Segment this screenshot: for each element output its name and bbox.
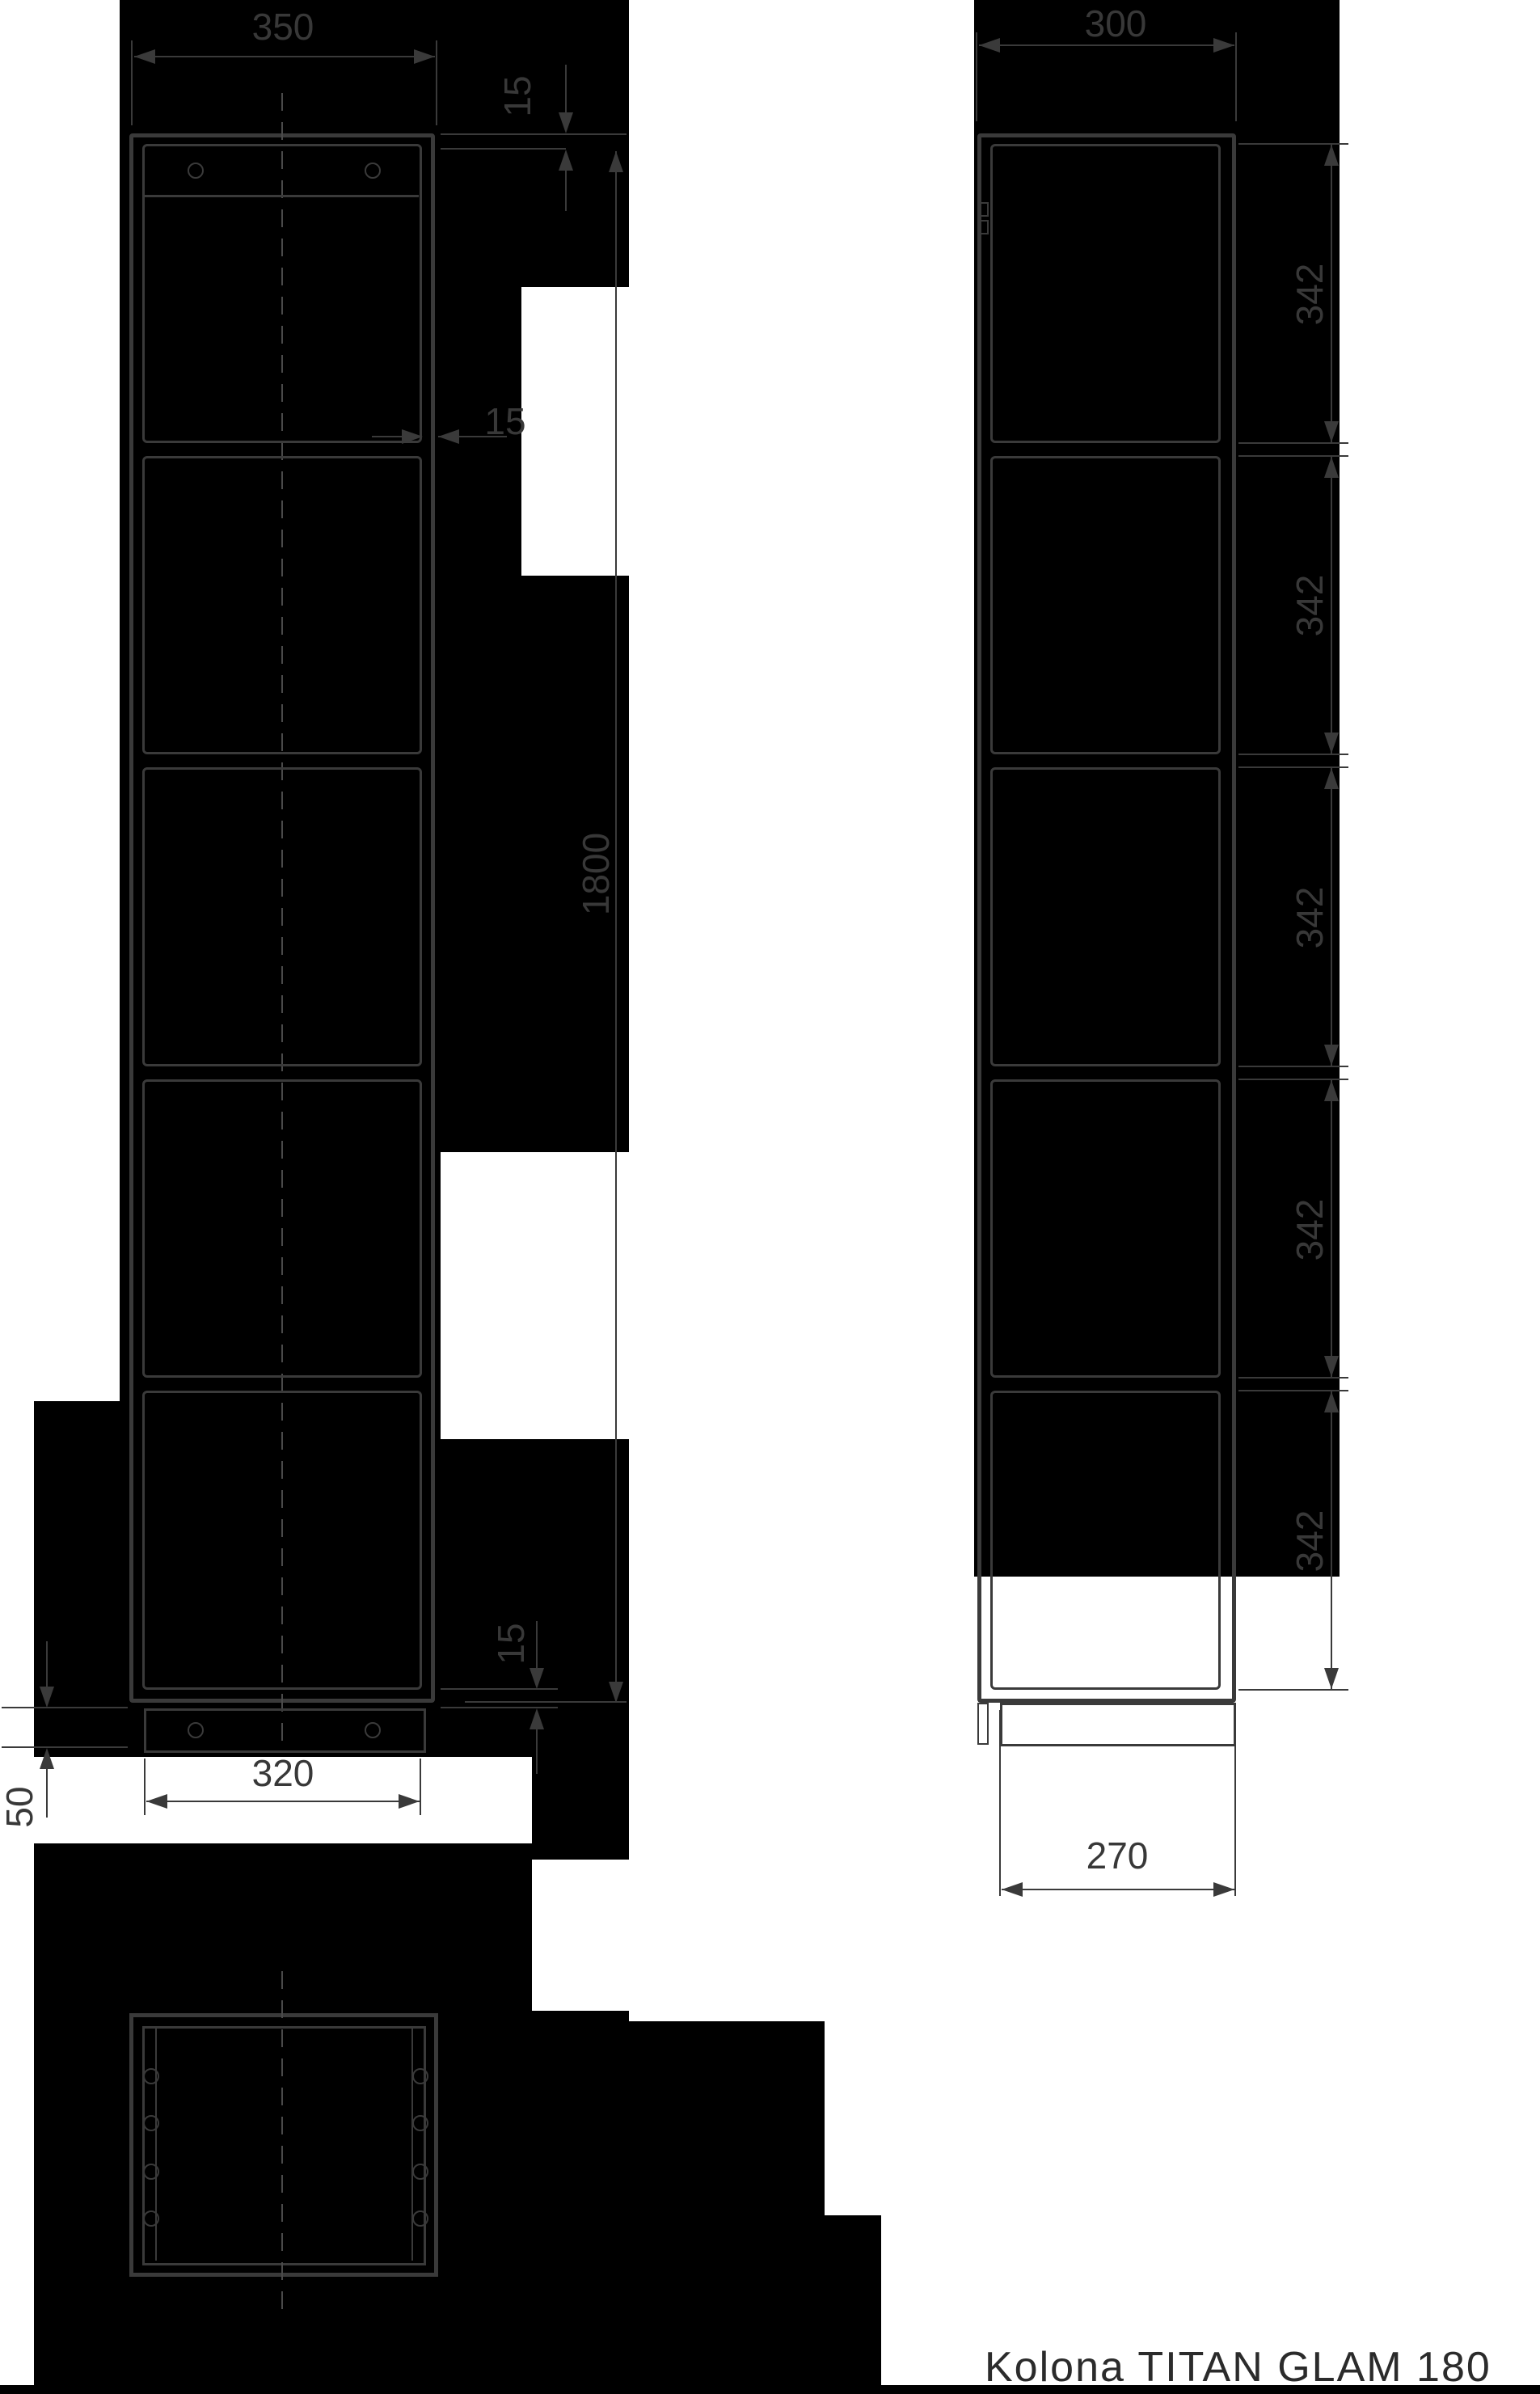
paper-notch-plan — [532, 1860, 629, 2011]
dim-bottom-gap-label: 15 — [492, 1607, 530, 1680]
side-panel-5 — [990, 1391, 1221, 1690]
dim-height-label: 1800 — [577, 813, 614, 935]
dim-front-width-label: 350 — [247, 8, 319, 45]
mount-hole-top-right — [365, 163, 381, 179]
paper-right-margin — [1340, 0, 1540, 1577]
plan-wall-left — [155, 2028, 157, 2261]
hinge-mark-1 — [979, 202, 989, 217]
plan-hole-l4 — [143, 2210, 159, 2227]
door-panel-3 — [142, 767, 422, 1066]
hinge-mark-2 — [979, 220, 989, 234]
plan-wall-right — [411, 2028, 413, 2261]
mount-hole-bottom-left — [188, 1722, 204, 1738]
drawing-caption: Kolona TITAN GLAM 180 — [985, 2346, 1491, 2388]
plan-hole-r3 — [412, 2164, 428, 2180]
plan-hole-l2 — [143, 2115, 159, 2131]
side-leg — [977, 1703, 989, 1745]
dim-section-label-4: 342 — [1291, 1169, 1328, 1290]
top-rail-line — [144, 195, 419, 197]
door-panel-2 — [142, 456, 422, 754]
plan-hole-r2 — [412, 2115, 428, 2131]
plan-hole-r4 — [412, 2210, 428, 2227]
front-plinth — [144, 1708, 426, 1753]
dim-side-gap-label: 15 — [473, 403, 538, 440]
paper-left-sliver — [0, 1401, 34, 2385]
mount-hole-top-left — [188, 163, 204, 179]
dim-top-gap-label: 15 — [499, 60, 536, 133]
side-plinth — [1000, 1703, 1236, 1746]
door-panel-5 — [142, 1391, 422, 1690]
plan-hole-l3 — [143, 2164, 159, 2180]
plan-hole-l1 — [143, 2068, 159, 2084]
dim-plinth-height-label: 50 — [1, 1771, 38, 1843]
dim-section-label-1: 342 — [1291, 234, 1328, 355]
side-panel-1 — [990, 144, 1221, 443]
door-panel-1 — [142, 144, 422, 443]
mount-hole-bottom-right — [365, 1722, 381, 1738]
dim-section-label-2: 342 — [1291, 545, 1328, 666]
plan-inner — [142, 2026, 426, 2265]
side-panel-3 — [990, 767, 1221, 1066]
side-panel-4 — [990, 1079, 1221, 1378]
dim-section-label-5: 342 — [1291, 1480, 1328, 1602]
technical-drawing-canvas: 350 15 15 1800 — [0, 0, 1540, 2394]
side-panel-2 — [990, 456, 1221, 754]
bottom-edge-strip — [0, 2385, 1540, 2394]
dim-section-label-3: 342 — [1291, 857, 1328, 978]
door-panel-4 — [142, 1079, 422, 1378]
paper-notch-lower — [441, 1152, 629, 1439]
dim-depth-label: 300 — [1079, 5, 1152, 42]
dim-door-width-label: 320 — [247, 1754, 319, 1792]
plan-centerline — [281, 1971, 283, 2309]
dim-plinth-depth-label: 270 — [1081, 1837, 1154, 1874]
plan-hole-r1 — [412, 2068, 428, 2084]
paper-left-margin — [0, 0, 120, 1401]
